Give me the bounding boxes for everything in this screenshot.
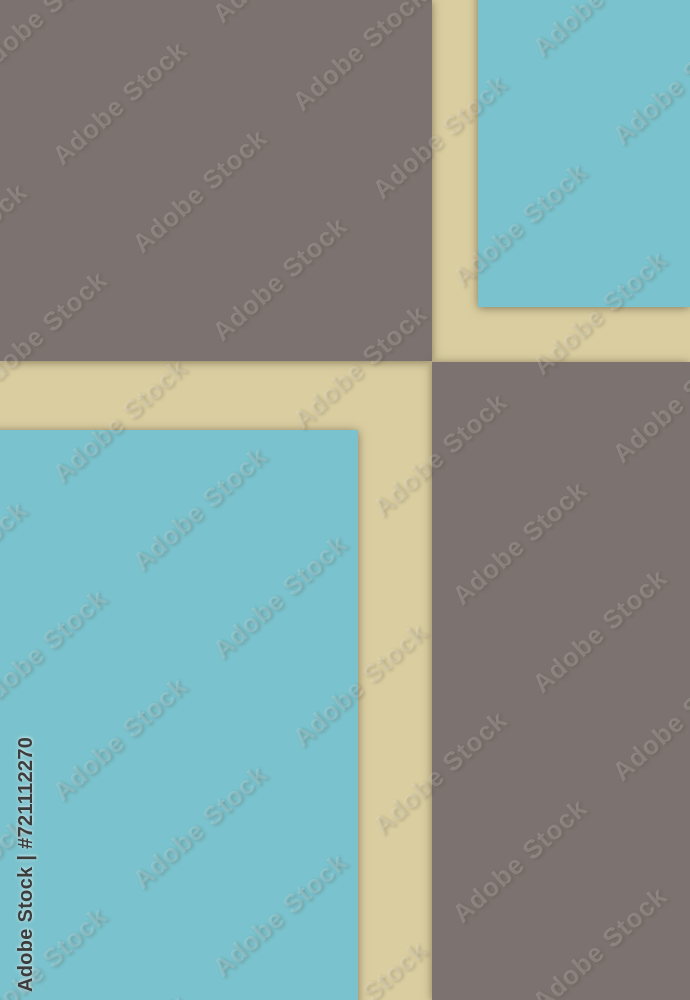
gray-rectangle-bottom-right: [432, 362, 690, 1000]
teal-rectangle-top-right: [478, 0, 690, 307]
watermark-id-text: Adobe Stock | #721112270: [15, 737, 38, 992]
stock-image-canvas: Adobe StockAdobe StockAdobe StockAdobe S…: [0, 0, 690, 1000]
gray-rectangle-top-left: [0, 0, 432, 361]
teal-rectangle-bottom-left: [0, 430, 358, 1000]
